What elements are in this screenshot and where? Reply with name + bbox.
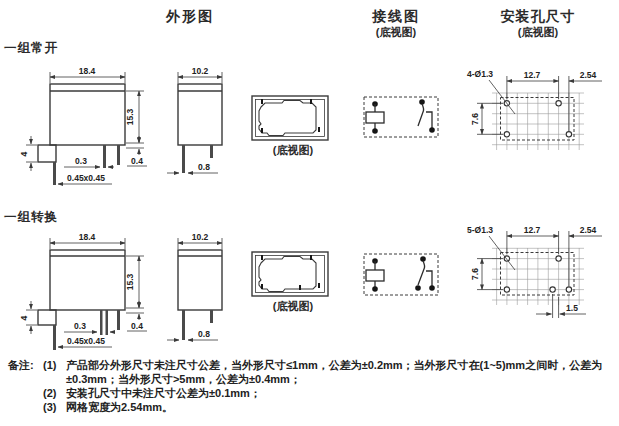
relay-side-body (178, 84, 222, 145)
dim-front-height: 15.3 (125, 273, 135, 290)
outline-views-row2: 18.4 15.3 0.4 4 0.3 0.45x0.45 10.2 0.8 (18, 205, 238, 355)
dim-side-pin: 0.8 (198, 329, 210, 339)
bottom-view-caption: (底视图) (243, 299, 343, 314)
dim-pitch-h: 12.7 (524, 70, 541, 80)
mounting-hole (566, 132, 571, 137)
relay-pin (210, 145, 213, 158)
note-item: (1) 产品部分外形尺寸未注尺寸公差，当外形尺寸≤1mm，公差为±0.2mm；当… (43, 358, 614, 386)
dim-grid-pitch: 2.54 (580, 70, 597, 80)
contact-no-terminal (429, 285, 435, 291)
relay-tab (38, 145, 56, 162)
dim-hole-count: 5-Ø1.3 (467, 225, 493, 235)
relay-footprint-outline (501, 98, 575, 141)
coil-terminal (372, 286, 378, 292)
dim-pitch-v: 7.6 (470, 113, 480, 125)
notes-block: 备注: (1) 产品部分外形尺寸未注尺寸公差，当外形尺寸≤1mm，公差为±0.2… (8, 358, 614, 414)
contact-fixed (426, 112, 432, 128)
relay-side-body (178, 250, 222, 310)
note-text: 网格宽度为2.54mm。 (66, 400, 614, 414)
mounting-holes-subtitle: (底视图) (493, 25, 583, 40)
coil-symbol (366, 270, 384, 281)
outline-drawing-title: 外形图 (150, 8, 230, 26)
dim-hole-count: 4-Ø1.3 (467, 69, 493, 79)
mounting-holes-row2: 5-Ø1.3 12.7 2.54 7.6 1.5 (465, 212, 619, 324)
dim-pin-square: 0.45x0.45 (67, 336, 105, 346)
row-label-normally-open: 一组常开 (4, 40, 58, 57)
coil-terminal (372, 128, 378, 134)
contact-fixed (426, 271, 432, 286)
dim-front-width: 18.4 (79, 232, 96, 242)
bottom-view-inner-outline (259, 101, 316, 136)
dim-grid-pitch: 2.54 (580, 225, 597, 235)
contact-arm (418, 104, 424, 126)
bottom-view-row2 (243, 248, 343, 300)
notes-label: 备注: (8, 358, 38, 414)
wiring-diagram-row2 (353, 247, 463, 302)
datasheet-page: 外形图 接线图 (底视图) 安装孔尺寸 (底视图) 一组常开 一组转换 18.4… (0, 0, 619, 426)
contact-nc-terminal (415, 285, 421, 291)
mounting-hole (556, 256, 561, 261)
contact-no-terminal (429, 127, 435, 133)
bottom-view-row1 (243, 92, 343, 144)
bottom-view-inner-outline (259, 257, 316, 292)
dim-tab-height: 4 (19, 151, 29, 156)
wiring-diagram-subtitle: (底视图) (356, 25, 436, 40)
dim-side-width: 10.2 (192, 66, 209, 76)
note-number: (1) (43, 358, 61, 386)
mounting-hole (504, 132, 509, 137)
relay-pin (53, 325, 56, 350)
relay-pin (103, 145, 106, 168)
dim-pin-square: 0.45x0.45 (67, 173, 105, 183)
note-text: 产品部分外形尺寸未注尺寸公差，当外形尺寸≤1mm，公差为±0.2mm；当外形尺寸… (66, 358, 614, 386)
contact-common-terminal (420, 256, 426, 262)
outline-views-row1: 18.4 15.3 0.4 4 0.3 0.45x0.45 10.2 (18, 58, 238, 190)
mounting-hole (556, 101, 561, 106)
dim-side-width: 10.2 (192, 232, 209, 242)
note-item: (2) 安装孔尺寸中未注尺寸公差为±0.1mm； (43, 386, 614, 400)
wiring-diagram-title: 接线图 (356, 8, 436, 26)
dim-pitch-h: 12.7 (524, 225, 541, 235)
dim-front-width: 18.4 (79, 66, 96, 76)
mounting-hole (504, 287, 509, 292)
dim-front-height: 15.3 (125, 108, 135, 125)
note-text: 安装孔尺寸中未注尺寸公差为±0.1mm； (66, 386, 614, 400)
relay-pin (182, 310, 185, 340)
coil-symbol (366, 112, 384, 123)
relay-pin (117, 310, 120, 330)
relay-pin (106, 310, 109, 335)
dim-standoff: 0.4 (131, 156, 143, 166)
relay-pin (182, 145, 185, 173)
mounting-hole (550, 287, 555, 292)
relay-tab (38, 310, 56, 325)
dim-side-pin: 0.8 (198, 162, 210, 172)
mounting-hole (566, 287, 571, 292)
contact-common-terminal (419, 99, 425, 105)
dim-standoff: 0.4 (131, 321, 143, 331)
dim-offset: 1.5 (566, 303, 578, 313)
contact-arm (418, 261, 425, 285)
wiring-diagram-row1 (353, 90, 463, 142)
dim-pitch-v: 7.6 (470, 268, 480, 280)
note-number: (3) (43, 400, 61, 414)
relay-pin (53, 162, 56, 185)
bottom-view-caption: (底视图) (243, 143, 343, 158)
relay-front-body (50, 250, 125, 310)
mounting-holes-title: 安装孔尺寸 (493, 8, 583, 26)
relay-pin (117, 145, 120, 165)
relay-pin (100, 310, 103, 335)
dim-tab-height: 4 (19, 315, 29, 320)
mounting-holes-row1: 4-Ø1.3 12.7 2.54 7.6 (465, 60, 619, 165)
note-number: (2) (43, 386, 61, 400)
relay-pin (210, 310, 213, 323)
note-item: (3) 网格宽度为2.54mm。 (43, 400, 614, 414)
dim-pin-mid: 0.3 (74, 321, 86, 331)
relay-front-body (50, 84, 125, 145)
dim-pin-mid: 0.3 (75, 156, 87, 166)
